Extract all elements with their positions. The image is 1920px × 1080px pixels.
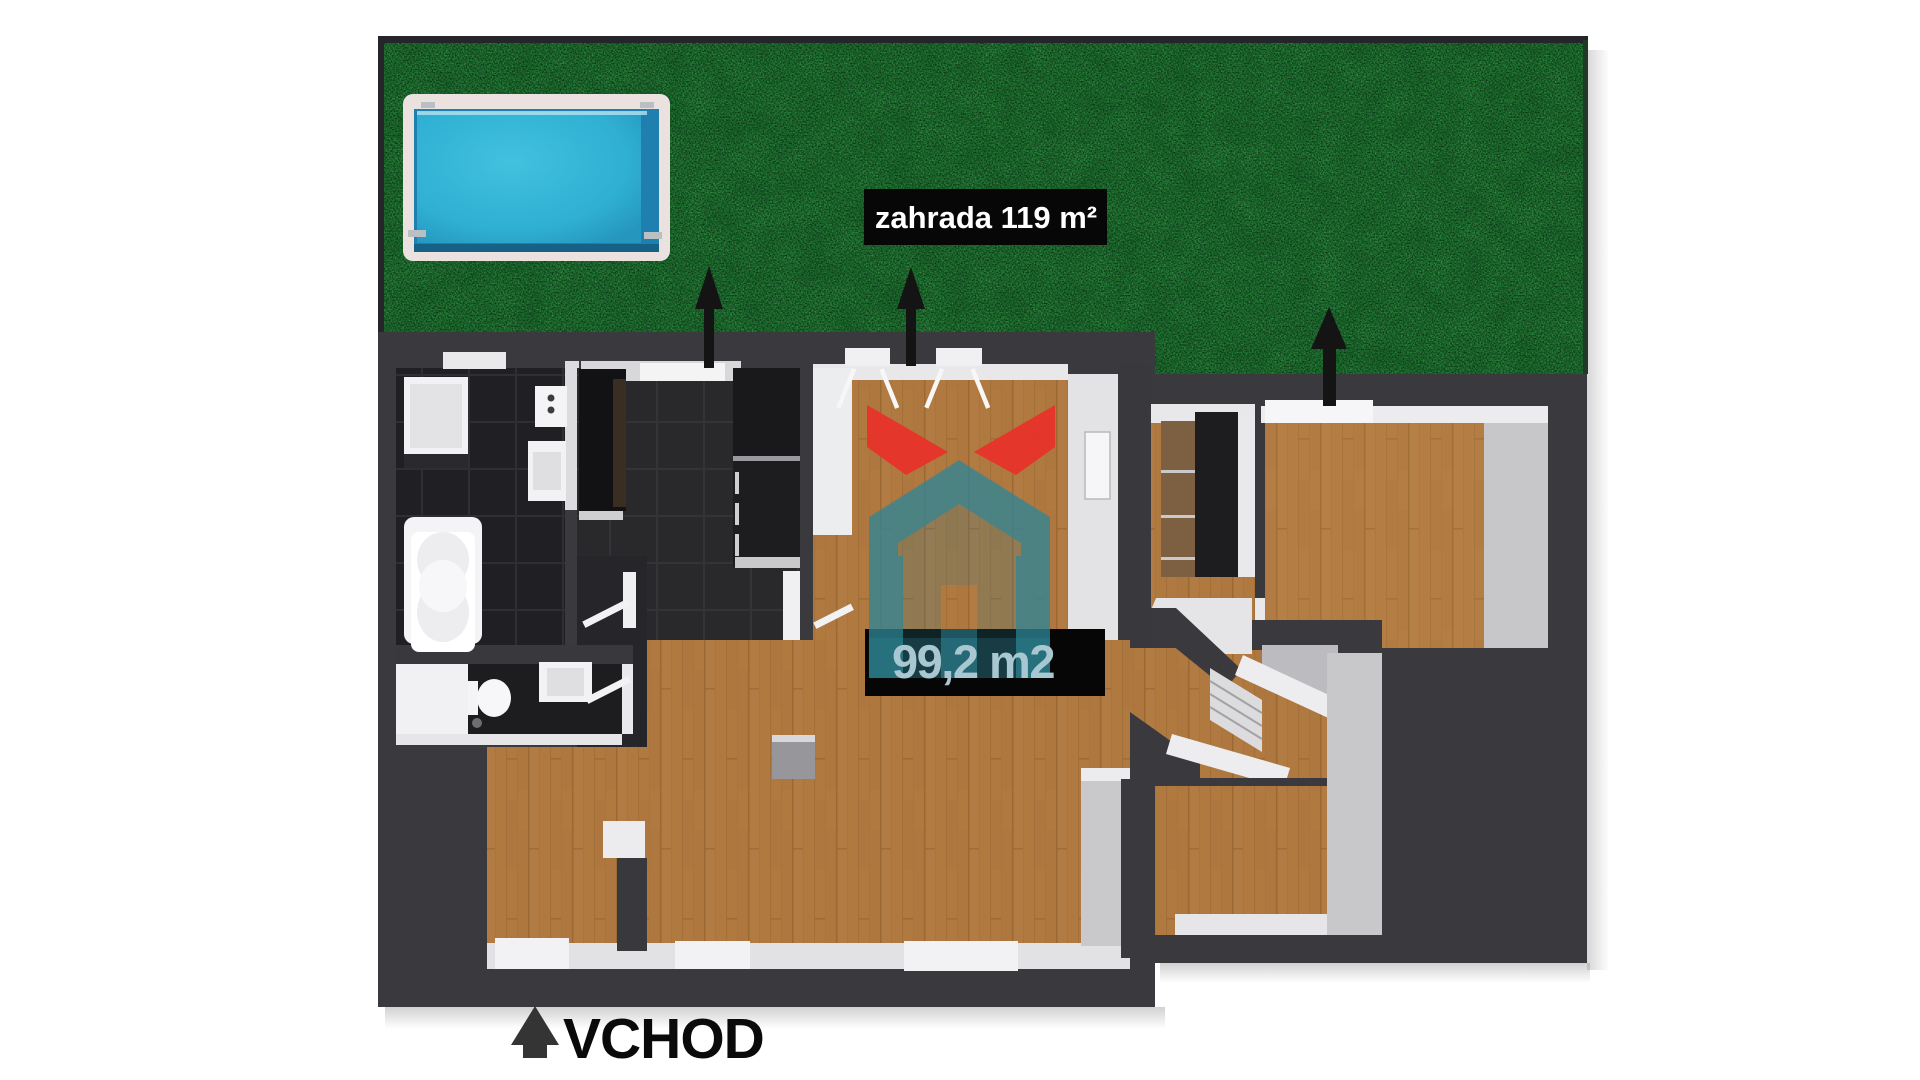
svg-text:99,2 m2: 99,2 m2 [892,635,1054,688]
svg-text:VCHOD: VCHOD [563,1007,764,1071]
svg-text:zahrada 119 m²: zahrada 119 m² [875,200,1097,235]
